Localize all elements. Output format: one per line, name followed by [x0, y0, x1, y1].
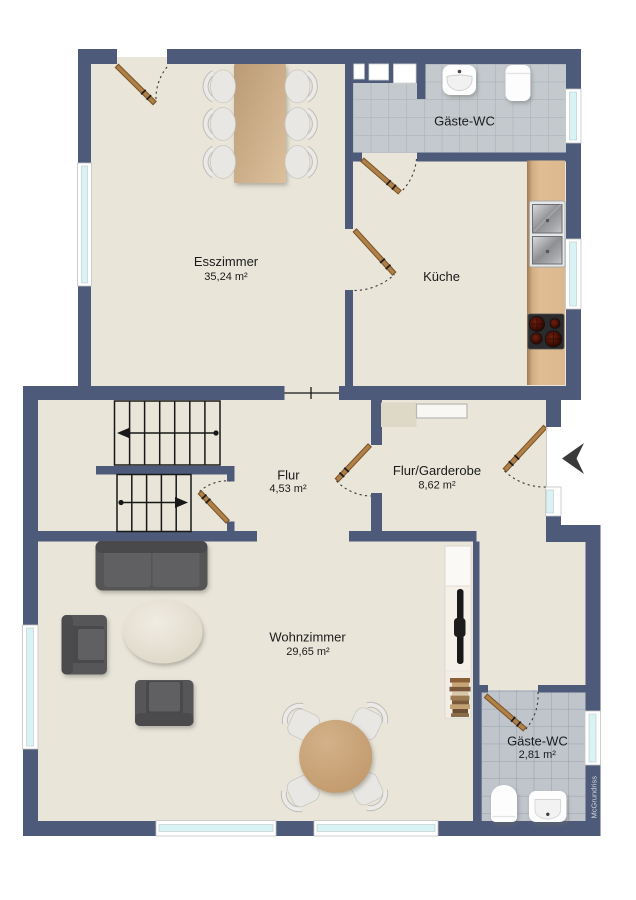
- svg-text:Gäste-WC: Gäste-WC: [434, 113, 495, 128]
- svg-text:2,81 m²: 2,81 m²: [519, 749, 557, 761]
- svg-text:Gäste-WC: Gäste-WC: [507, 733, 568, 748]
- svg-text:Küche: Küche: [423, 269, 460, 284]
- svg-text:29,65 m²: 29,65 m²: [286, 646, 330, 658]
- svg-text:Wohnzimmer: Wohnzimmer: [269, 630, 346, 645]
- svg-text:Flur: Flur: [277, 467, 300, 482]
- svg-text:Flur/Garderobe: Flur/Garderobe: [393, 463, 481, 478]
- svg-text:8,62 m²: 8,62 m²: [418, 479, 456, 491]
- svg-text:4,53 m²: 4,53 m²: [269, 483, 307, 495]
- svg-text:Esszimmer: Esszimmer: [194, 254, 259, 269]
- svg-text:McGrundriss: McGrundriss: [590, 776, 599, 819]
- svg-text:35,24 m²: 35,24 m²: [204, 271, 248, 283]
